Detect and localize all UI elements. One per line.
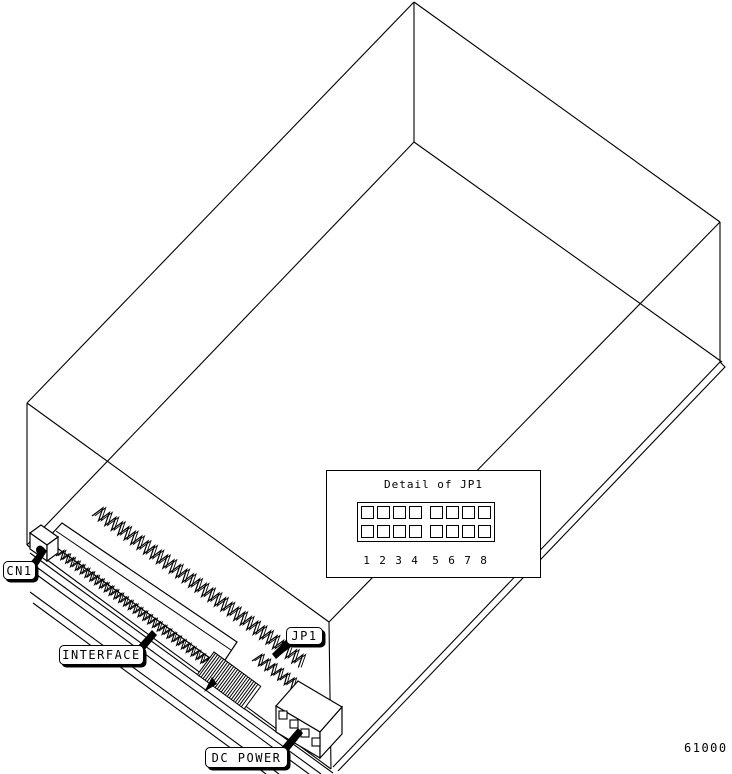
jp1-pin-number: 5: [429, 554, 442, 567]
jp1-pin-row-bottom: [361, 525, 491, 538]
jp1-pin-cell: [478, 506, 491, 519]
jp1-detail-inset: Detail of JP1: [326, 470, 541, 578]
jp1-pin-number: 8: [477, 554, 490, 567]
jp1-pin-number: 4: [408, 554, 421, 567]
jp1-label: JP1: [286, 627, 323, 645]
jp1-pin-cell: [409, 506, 422, 519]
jp1-pin-number: 1: [360, 554, 373, 567]
jp1-pin-cell: [462, 506, 475, 519]
top-right-edge: [414, 2, 720, 222]
jp1-pin-cell: [361, 525, 374, 538]
pcb-contact-stripes: [197, 652, 260, 709]
jp1-pin-cell: [430, 525, 443, 538]
jp1-pin-number: 7: [461, 554, 474, 567]
jp1-pin-cell: [446, 525, 459, 538]
cn1-label: CN1: [3, 561, 36, 580]
dc-pin-1: [279, 711, 287, 719]
interface-label: INTERFACE: [59, 645, 144, 665]
jp1-pin-row-top: [361, 506, 491, 519]
jp1-pin-number: 3: [392, 554, 405, 567]
figure-canvas: Detail of JP1: [0, 0, 732, 774]
jp1-pin-cell: [446, 506, 459, 519]
jp1-pin-cell: [393, 525, 406, 538]
jp1-pin-cell: [361, 506, 374, 519]
jp1-pin-cell: [478, 525, 491, 538]
jp1-pin-cell: [430, 506, 443, 519]
jp1-pin-cell: [377, 525, 390, 538]
jp1-pin-cell: [377, 506, 390, 519]
dc-pin-2: [290, 720, 298, 728]
jp1-pin-cell: [462, 525, 475, 538]
jp1-pin-number: 2: [376, 554, 389, 567]
jp1-pin-cell: [409, 525, 422, 538]
front-left-edge: [27, 403, 329, 622]
inset-title: Detail of JP1: [327, 478, 540, 491]
jp1-pin-cell: [393, 506, 406, 519]
figure-number: 61000: [684, 741, 728, 755]
jp1-pin-block: [357, 502, 495, 542]
dc-power-label: DC POWER: [205, 747, 288, 768]
bottom-back-right-edge: [414, 142, 722, 362]
jp1-pin-numbers: 1 2 3 4 5 6 7 8: [360, 554, 493, 567]
dc-pin-4: [312, 738, 320, 746]
jp1-pin-number: 6: [445, 554, 458, 567]
